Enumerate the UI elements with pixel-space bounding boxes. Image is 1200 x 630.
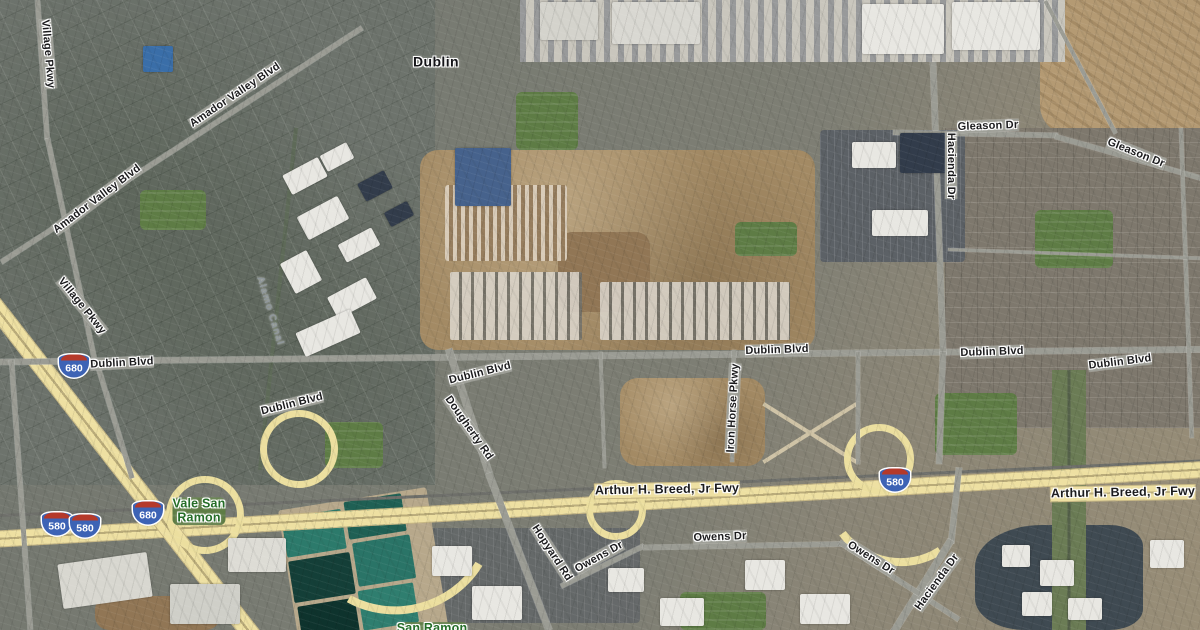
road-label: Dublin Blvd: [1088, 352, 1152, 372]
road-label: Owens Dr: [573, 539, 625, 575]
road-label: Gleason Dr: [957, 119, 1018, 133]
label-layer: Village PkwyAmador Valley BlvdAmador Val…: [0, 0, 1200, 630]
road-label: Owens Dr: [845, 539, 896, 577]
interstate-580-shield: 580: [880, 469, 910, 492]
road-label: Village Pkwy: [56, 275, 109, 336]
road-label: Dublin Blvd: [745, 343, 809, 357]
road-label: Amador Valley Blvd: [188, 60, 283, 129]
freeway-label: Arthur H. Breed, Jr Fwy: [595, 482, 739, 498]
freeway-label: Arthur H. Breed, Jr Fwy: [1051, 485, 1195, 501]
interstate-580-shield: 580: [70, 515, 100, 538]
park-label[interactable]: Vale SanRamon: [172, 497, 225, 525]
road-label: Dublin Blvd: [260, 390, 324, 417]
road-label: Amador Valley Blvd: [51, 162, 143, 236]
road-label: Dublin Blvd: [448, 359, 512, 386]
road-label: Hacienda Dr: [945, 133, 957, 199]
interstate-580-shield: 580: [42, 513, 72, 536]
park-label[interactable]: San Ramon: [397, 622, 468, 630]
water-label: Alamo Canal: [254, 275, 285, 347]
road-label: Hacienda Dr: [913, 552, 962, 613]
city-label[interactable]: Dublin: [413, 54, 459, 69]
road-label: Village Pkwy: [39, 19, 57, 89]
road-label: Dougherty Rd: [443, 394, 496, 462]
road-label: Owens Dr: [693, 530, 746, 544]
road-label: Hopyard Rd: [529, 523, 574, 584]
interstate-680-shield: 680: [59, 355, 89, 378]
interstate-680-shield: 680: [133, 502, 163, 525]
satellite-map[interactable]: Village PkwyAmador Valley BlvdAmador Val…: [0, 0, 1200, 630]
road-label: Gleason Dr: [1106, 136, 1167, 170]
road-label: Dublin Blvd: [960, 345, 1024, 359]
road-label: Dublin Blvd: [90, 355, 154, 370]
road-label: Iron Horse Pkwy: [725, 363, 742, 453]
